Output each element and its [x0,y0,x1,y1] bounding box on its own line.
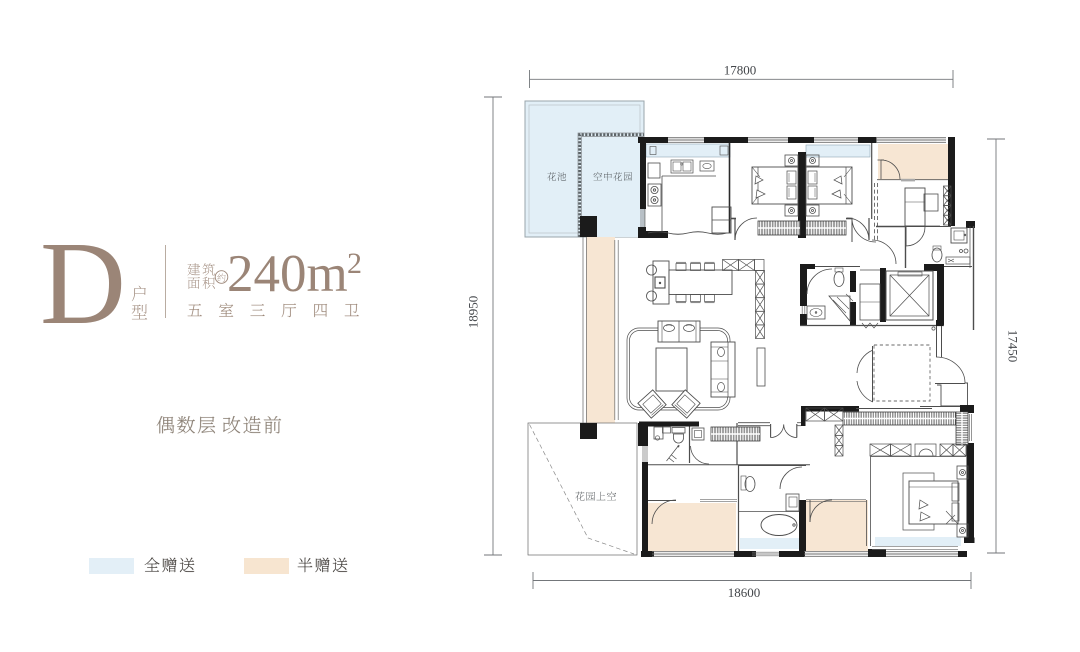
svg-text:17450: 17450 [1006,330,1021,363]
svg-text:18950: 18950 [466,296,481,329]
svg-text:18600: 18600 [728,585,761,600]
svg-text:D: D [40,217,126,349]
svg-text:17800: 17800 [724,63,757,78]
svg-text:2: 2 [347,247,362,280]
svg-text:240m: 240m [227,245,348,303]
